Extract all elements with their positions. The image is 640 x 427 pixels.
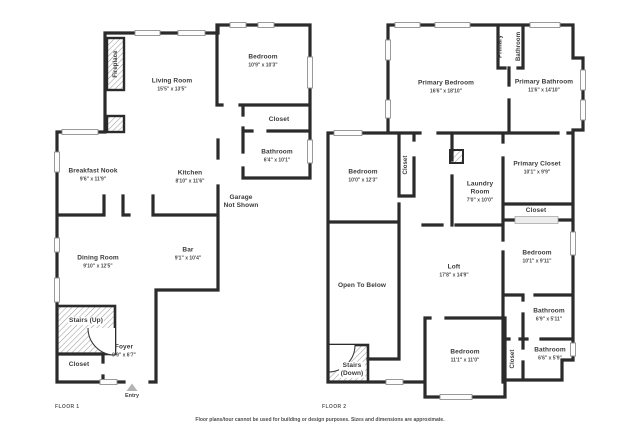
room-label-breakfast-nook: Breakfast Nook9'6" x 11'9": [68, 168, 117, 183]
room-label-open-to-below: Open To Below: [338, 282, 386, 290]
room-label-bedroom-2: Bedroom10'0" x 12'3": [348, 169, 377, 184]
room-label-stairs-down: Stairs (Down): [339, 362, 365, 378]
room-label-dining-room: Dining Room9'10" x 12'5": [77, 255, 119, 270]
room-label-foyer: Foyer9'9" x 6'7": [112, 344, 136, 359]
room-label-bathroom-upper: Bathroom6'9" x 5'11": [533, 308, 565, 323]
room-label-closet-entry: Closet: [69, 361, 89, 369]
room-label-primary-bathroom: Primary Bathroom11'6" x 14'10": [515, 79, 573, 94]
room-label-primary-bathroom-wc: Primary Bathroom: [492, 26, 529, 66]
floor1-caption: FLOOR 1: [55, 404, 79, 410]
room-label-stairs-up: Stairs (Up): [68, 317, 104, 325]
room-label-laundry: Laundry Room7'0" x 10'0": [462, 181, 498, 204]
room-label-bar: Bar9'1" x 10'4": [175, 247, 202, 262]
room-label-bedroom-3: Bedroom10'1" x 9'11": [522, 250, 551, 265]
room-label-loft: Loft17'8" x 14'9": [439, 264, 468, 279]
floor1-hatched-areas: [57, 38, 124, 355]
room-label-bedroom-1: Bedroom10'9" x 10'3": [248, 54, 277, 69]
room-label-garage: GarageNot Shown: [224, 194, 259, 210]
entry-arrow-icon: [127, 384, 138, 392]
room-label-bathroom-1: Bathroom6'4" x 10'1": [261, 149, 293, 164]
room-label-closet-right: Closet: [526, 207, 546, 215]
room-label-bathroom-lower: Bathroom6'6" x 5'9": [534, 347, 566, 362]
room-label-primary-bedroom: Primary Bedroom16'6" x 18'10": [418, 80, 474, 95]
room-label-primary-closet: Primary Closet10'1" x 9'9": [513, 161, 560, 176]
floor2-caption: FLOOR 2: [322, 404, 346, 410]
room-label-bedroom-4: Bedroom11'1" x 11'0": [450, 349, 479, 364]
room-label-closet-1: Closet: [269, 116, 289, 124]
room-label-closet-lower: Closet: [504, 350, 522, 369]
room-label-kitchen: Kitchen8'10" x 11'6": [175, 170, 204, 185]
room-label-closet-mid: Closet: [397, 156, 415, 175]
chimney-hatch: [107, 116, 124, 132]
entry-label: Entry: [125, 393, 139, 399]
closet-sliding-door: [515, 217, 558, 224]
floorplan-page: Fireplace Living Room15'5" x 13'5" Bedro…: [0, 0, 640, 427]
disclaimer-text: Floor plans/tour cannot be used for buil…: [0, 417, 640, 423]
room-label-fireplace: Fireplace: [106, 50, 124, 77]
room-label-living-room: Living Room15'5" x 13'5": [152, 78, 192, 93]
